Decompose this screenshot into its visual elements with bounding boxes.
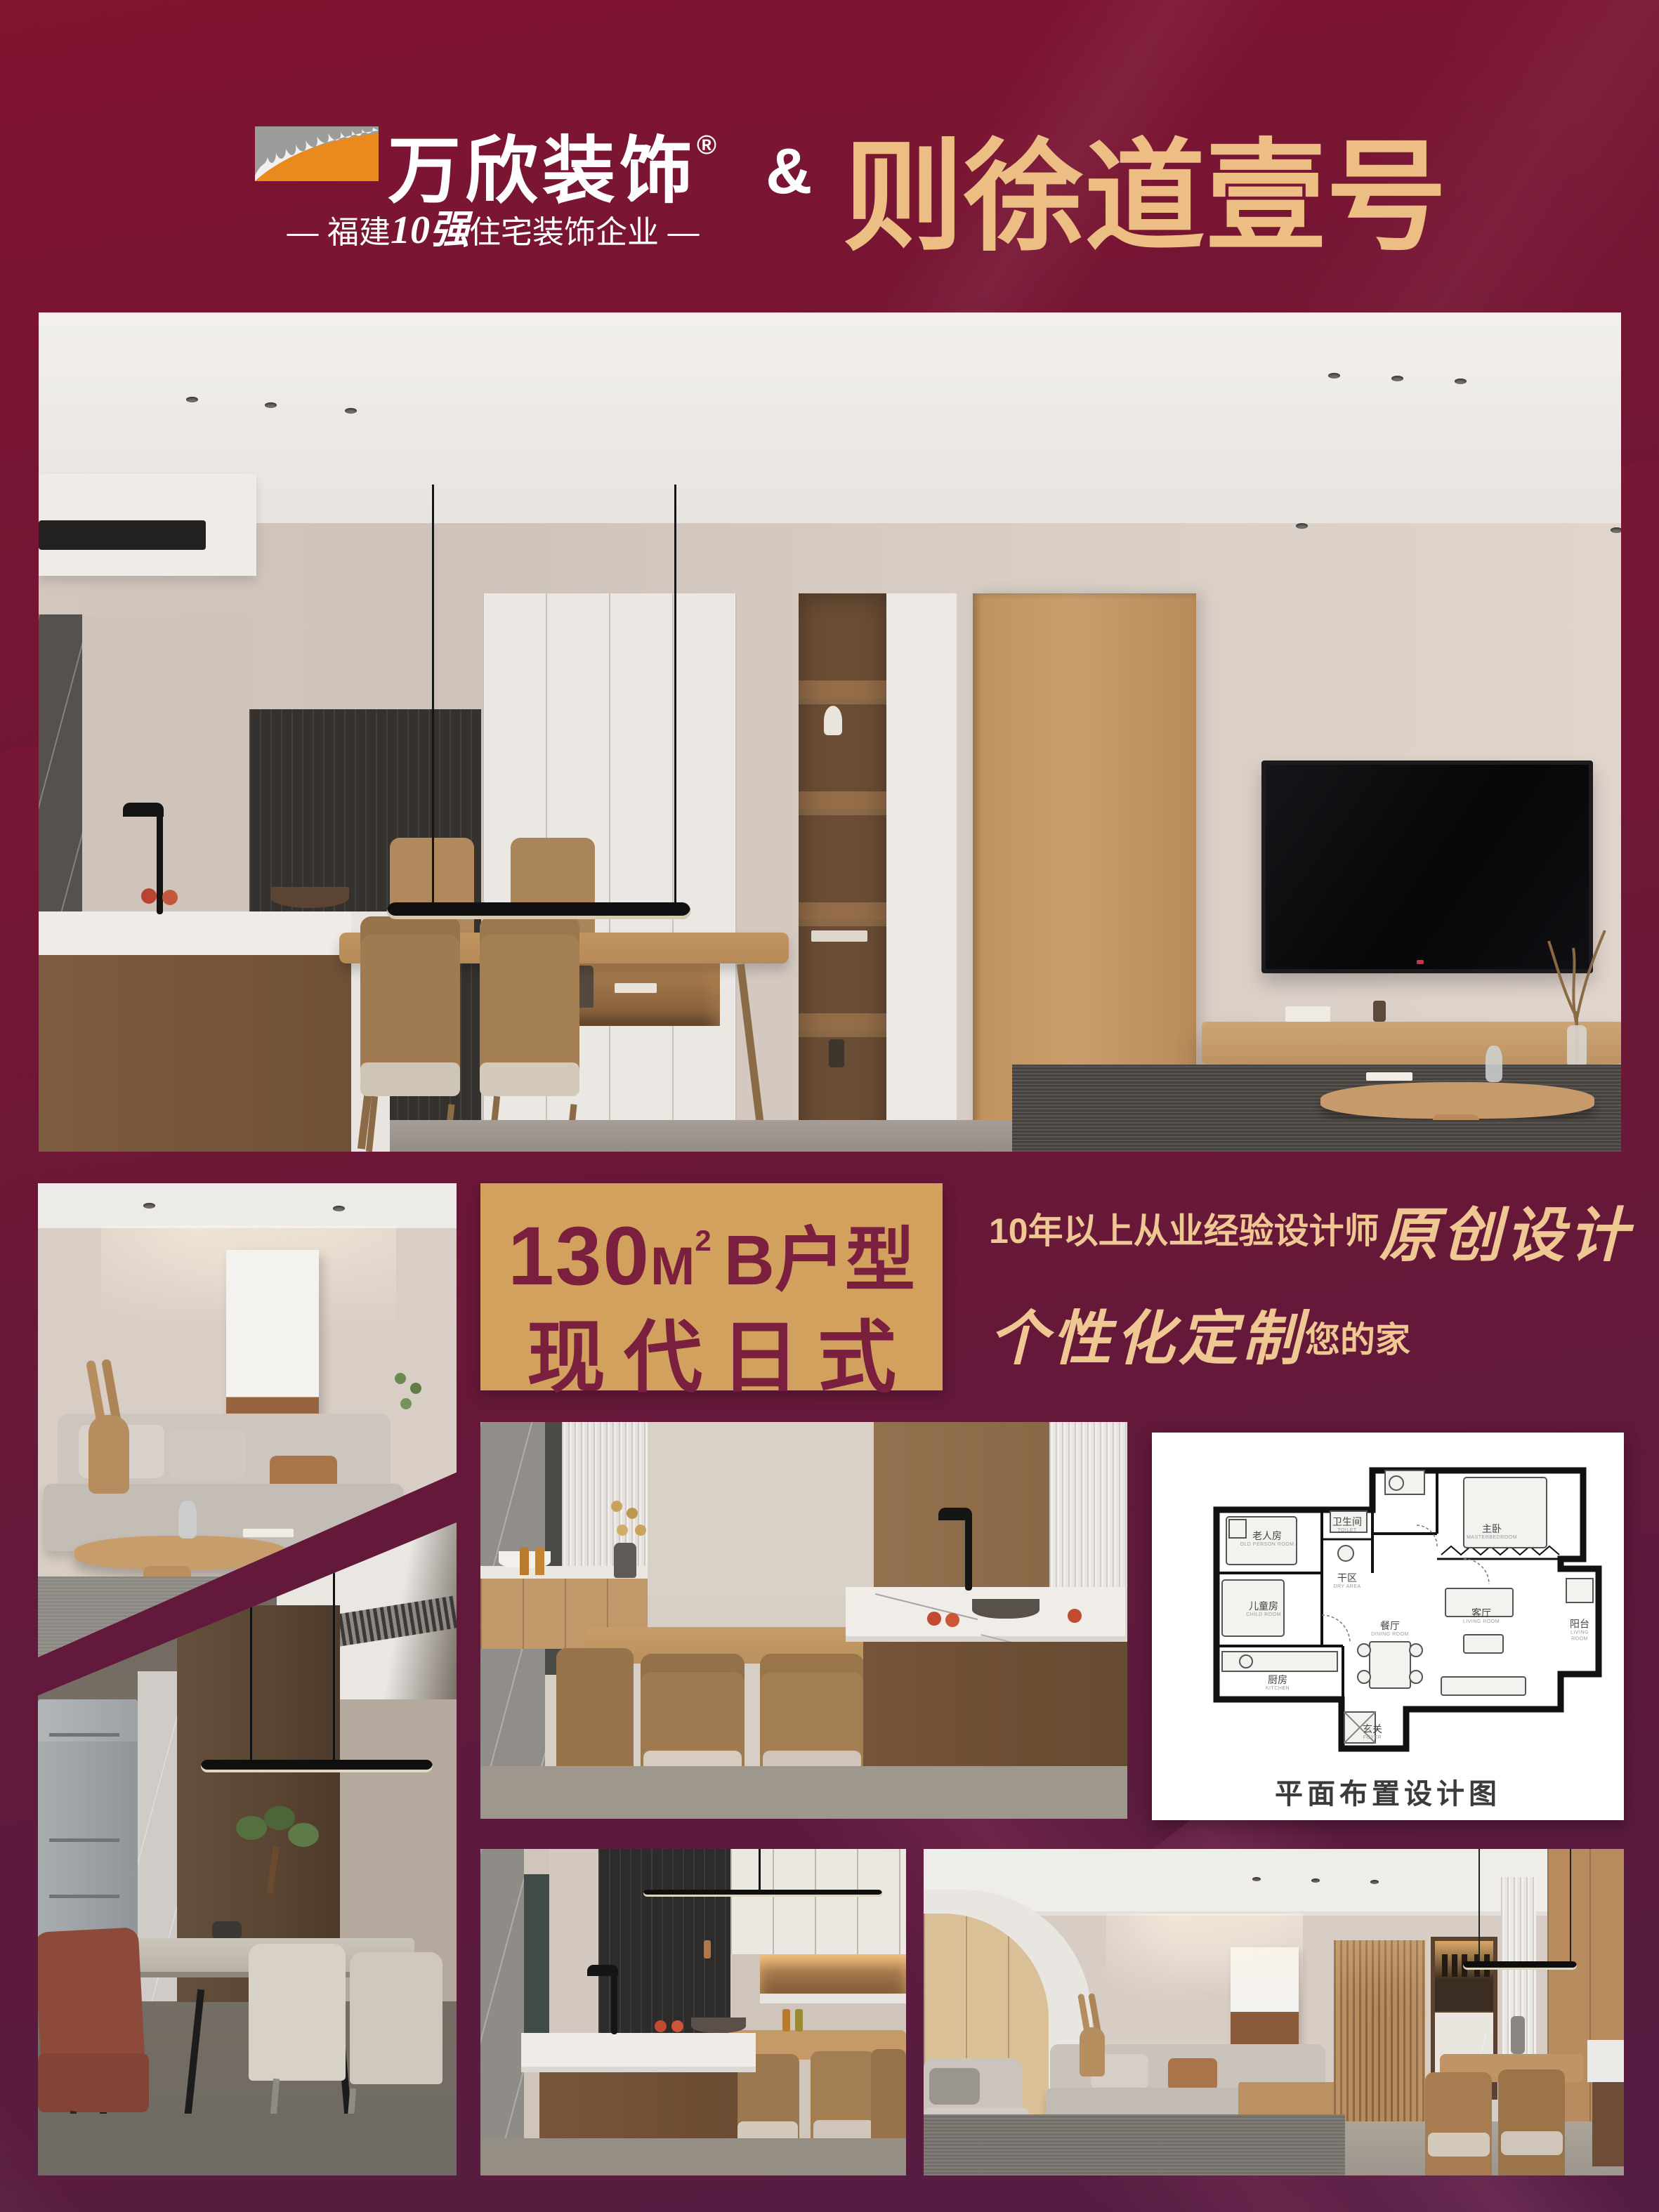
downlight xyxy=(1296,523,1308,529)
tall-wood-cabinets xyxy=(874,1422,1049,1591)
photo-living-arch xyxy=(924,1849,1624,2175)
dried-branch-vase xyxy=(1535,913,1619,1067)
tagline-accent: 10强 xyxy=(391,209,469,252)
badge-line2: 现代日式 xyxy=(480,1294,943,1385)
ac-vent xyxy=(39,520,206,550)
pendant-cable xyxy=(1570,1849,1571,1963)
wall xyxy=(648,1422,879,1598)
faucet-spout xyxy=(587,1965,618,1976)
pendant-cable xyxy=(759,1849,761,1891)
brand-name: 万欣装饰® xyxy=(388,111,781,195)
badge-line1: 130M2B户型 xyxy=(480,1203,943,1294)
rug-edge xyxy=(1012,1120,1621,1152)
tagline-suffix: 住宅装饰企业 — xyxy=(469,214,700,250)
rug xyxy=(924,2114,1345,2175)
project-title: 则徐道壹号 xyxy=(843,98,1447,239)
chair xyxy=(1425,2072,1492,2175)
light-chair xyxy=(249,1944,346,2081)
chair-cushion xyxy=(1501,2131,1563,2155)
type-label: B户型 xyxy=(724,1221,915,1300)
floor xyxy=(480,1766,1127,1819)
pendant-light-bar xyxy=(201,1760,433,1772)
marble-wall xyxy=(480,1849,524,2175)
floorplan-caption: 平面布置设计图 xyxy=(1152,1771,1624,1808)
ceiling xyxy=(39,312,1621,537)
wall-panel-white xyxy=(886,593,957,1138)
teapot xyxy=(212,1921,242,1940)
tv-logo-dot xyxy=(1417,960,1424,964)
faucet xyxy=(965,1513,972,1591)
pitch-text: 10年以上从业经验设计师原创设计 个性化定制您的家 xyxy=(989,1188,1635,1420)
brand-logo-icon xyxy=(255,126,379,181)
gold-leaves xyxy=(611,1501,622,1512)
sofa-pillow-brown xyxy=(1168,2058,1217,2091)
header: 万欣装饰® — 福建10强住宅装饰企业 — & 则徐道壹号 xyxy=(0,0,1659,312)
wall-glow xyxy=(1106,1914,1303,2012)
photo-kitchen-entry xyxy=(480,1849,906,2175)
pendant-cable xyxy=(432,485,434,904)
chair-cushion xyxy=(360,1062,460,1096)
tomatoes xyxy=(927,1612,941,1626)
shelf-item-bottle xyxy=(829,1039,844,1067)
fluted-panel xyxy=(1049,1422,1127,1591)
downlight xyxy=(1455,378,1467,384)
room-label: 老人房OLD PERSON ROOM xyxy=(1240,1531,1294,1548)
pendant-cable xyxy=(674,485,676,904)
fruits xyxy=(655,2020,667,2032)
pitch-line1: 10年以上从业经验设计师原创设计 xyxy=(989,1188,1635,1273)
floor xyxy=(480,2138,906,2175)
area-unit: M xyxy=(650,1237,695,1296)
beer-bottles xyxy=(520,1547,529,1575)
downlight xyxy=(1328,373,1340,378)
hero-photo-living-dining xyxy=(39,312,1621,1152)
console-books xyxy=(1285,1006,1330,1022)
pitch-line2-script: 个性化定制 xyxy=(989,1307,1305,1372)
table-book xyxy=(1366,1072,1412,1081)
downlight xyxy=(186,397,198,402)
room-label: 餐厅DINING ROOM xyxy=(1371,1621,1409,1638)
faucet-spout xyxy=(938,1508,972,1520)
downlight xyxy=(1252,1877,1261,1881)
stone-bowl xyxy=(691,2017,746,2033)
rabbit-sculpture-body xyxy=(88,1415,129,1494)
sofa-pillow xyxy=(169,1429,246,1478)
bottles xyxy=(782,2009,790,2032)
floor xyxy=(38,2114,457,2175)
island-sliver xyxy=(1587,2040,1624,2082)
area-style-badge: 130M2B户型 现代日式 xyxy=(480,1183,943,1390)
white-cabinets xyxy=(730,1849,906,1954)
faucet xyxy=(157,808,163,914)
room-label: 卫生间TOILET xyxy=(1332,1517,1362,1534)
vase-dark xyxy=(614,1543,636,1578)
tagline-prefix: — 福建 xyxy=(287,214,391,250)
downlight xyxy=(1370,1880,1379,1884)
downlight xyxy=(1311,1878,1320,1883)
downlight xyxy=(143,1203,155,1209)
pendant-cable xyxy=(333,1558,335,1761)
stone-bowl xyxy=(972,1599,1040,1619)
island-base xyxy=(39,955,351,1152)
books xyxy=(243,1529,294,1537)
ampersand: & xyxy=(766,135,843,212)
faucet xyxy=(611,1970,617,2034)
pendant-cable xyxy=(250,1566,252,1761)
shelf-item-vase xyxy=(824,706,842,735)
shelf-item-books xyxy=(811,930,867,942)
pendant-light-bar xyxy=(1463,1961,1577,1970)
room-label: 客厅LIVING ROOM xyxy=(1463,1608,1500,1625)
coffee-table xyxy=(74,1536,287,1569)
downlight xyxy=(265,402,277,408)
island-sliver-base xyxy=(1592,2082,1624,2166)
fruit-bowl xyxy=(270,887,349,908)
area-value: 130 xyxy=(508,1210,650,1303)
table-vase xyxy=(1486,1046,1502,1082)
room-label: 主卧MASTERBEDROOM xyxy=(1467,1524,1517,1541)
floorplan-card: 老人房OLD PERSON ROOM 卫生间TOILET 干区DRY AREA … xyxy=(1152,1433,1624,1820)
cabinet-niche xyxy=(760,1954,906,1994)
red-chair-seat xyxy=(38,2053,149,2112)
room-label: 干区DRY AREA xyxy=(1333,1573,1360,1590)
light-chair xyxy=(350,1952,442,2084)
downlight xyxy=(345,408,357,414)
pitch-line2: 个性化定制您的家 xyxy=(989,1291,1635,1376)
niche-decor xyxy=(615,983,657,993)
vase-flowers xyxy=(1511,2016,1525,2054)
island-countertop xyxy=(521,2033,756,2072)
door-lock xyxy=(704,1940,711,1958)
plant-branch xyxy=(395,1373,406,1384)
bonsai-foliage xyxy=(236,1816,267,1840)
room-label: 儿童房CHILD ROOM xyxy=(1246,1601,1281,1618)
poster: 万欣装饰® — 福建10强住宅装饰企业 — & 则徐道壹号 xyxy=(0,0,1659,2212)
rabbit-sculpture-body xyxy=(1080,2027,1105,2076)
pitch-line2-text: 您的家 xyxy=(1305,1320,1410,1360)
downlight xyxy=(333,1206,345,1211)
vase xyxy=(178,1501,197,1539)
island-countertop xyxy=(39,911,390,957)
room-label: 阳台LIVING ROOM xyxy=(1563,1619,1597,1642)
coffee-table xyxy=(1320,1082,1594,1119)
chair-cushion xyxy=(480,1062,579,1096)
faucet-spout xyxy=(123,803,164,817)
chair-cushion xyxy=(1428,2133,1490,2157)
registered-mark: ® xyxy=(697,131,721,160)
fruit xyxy=(141,888,157,904)
floorplan-drawing: 老人房OLD PERSON ROOM 卫生间TOILET 干区DRY AREA … xyxy=(1162,1441,1614,1764)
pitch-line1-script: 原创设计 xyxy=(1379,1204,1632,1269)
pendant-light-bar xyxy=(643,1890,882,1897)
room-label: 玄关FOYER xyxy=(1363,1724,1382,1741)
counter xyxy=(760,1994,906,2003)
console-vase xyxy=(1373,1001,1386,1022)
pitch-line1-text: 10年以上从业经验设计师 xyxy=(989,1211,1379,1251)
room-label: 厨房KITCHEN xyxy=(1266,1675,1290,1692)
wine-bottles xyxy=(1442,1954,1448,1977)
downlight xyxy=(1611,527,1621,533)
armchair-pillow xyxy=(929,2068,980,2105)
ceiling xyxy=(38,1183,457,1228)
wine-cabinet-shelf xyxy=(1435,2013,1493,2032)
wood-slab-door xyxy=(973,593,1196,1138)
brand-tagline: — 福建10强住宅装饰企业 — xyxy=(247,198,739,247)
chair xyxy=(1498,2069,1565,2175)
fridge-handle xyxy=(49,1733,119,1737)
area-sup: 2 xyxy=(695,1224,711,1257)
downlight xyxy=(1391,376,1403,381)
photo-dining-island xyxy=(480,1422,1127,1819)
pendant-light-bar xyxy=(387,902,690,919)
pendant-cable xyxy=(1478,1849,1480,1963)
